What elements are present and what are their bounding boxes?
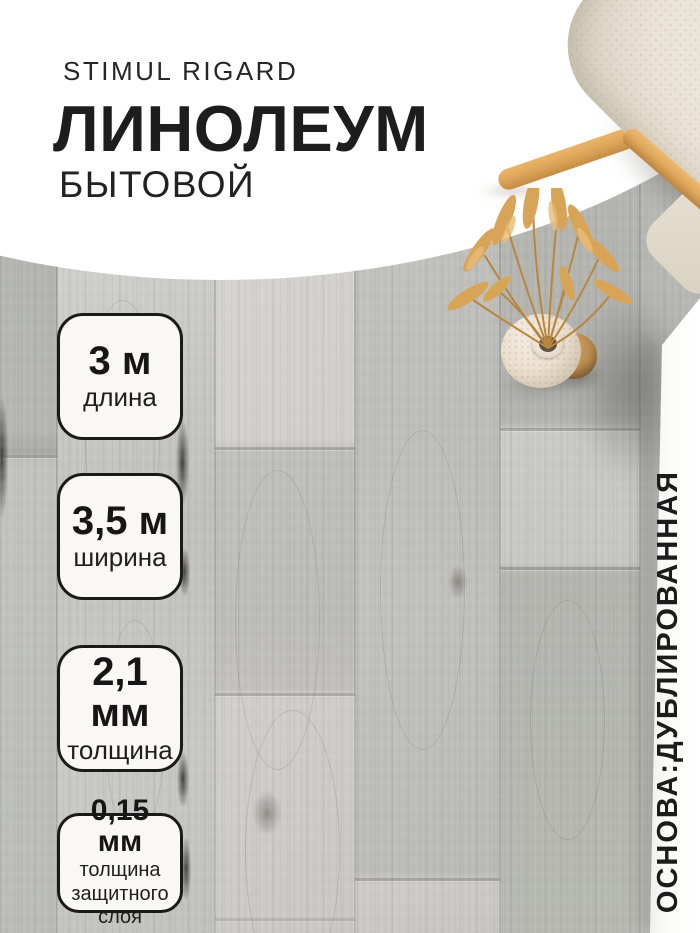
spec-label: длина [83, 383, 157, 412]
spec-badge-thickness: 2,1 мм толщина [57, 645, 183, 772]
spec-badge-length: 3 м длина [57, 313, 183, 440]
brand-name: STIMUL RIGARD [63, 56, 298, 87]
spec-label: толщина [67, 736, 172, 765]
product-subtitle: БЫТОВОЙ [59, 164, 255, 206]
spec-value: 2,1 мм [65, 652, 175, 734]
spec-label: толщина защитного слоя [65, 859, 175, 930]
spec-value: 0,15 мм [65, 796, 175, 857]
spec-value: 3,5 м [72, 501, 168, 542]
product-banner: ОСНОВА:ДУБЛИРОВАННАЯ STIMUL RIGARD ЛИНОЛ… [0, 0, 700, 933]
spec-badge-protective-layer: 0,15 мм толщина защитного слоя [57, 813, 183, 913]
wheat-bouquet [425, 188, 635, 358]
spec-value: 3 м [89, 341, 152, 382]
product-title: ЛИНОЛЕУМ [53, 91, 429, 166]
side-banner-text: ОСНОВА:ДУБЛИРОВАННАЯ [652, 470, 685, 913]
spec-badge-width: 3,5 м ширина [57, 473, 183, 600]
spec-label: ширина [73, 543, 166, 572]
